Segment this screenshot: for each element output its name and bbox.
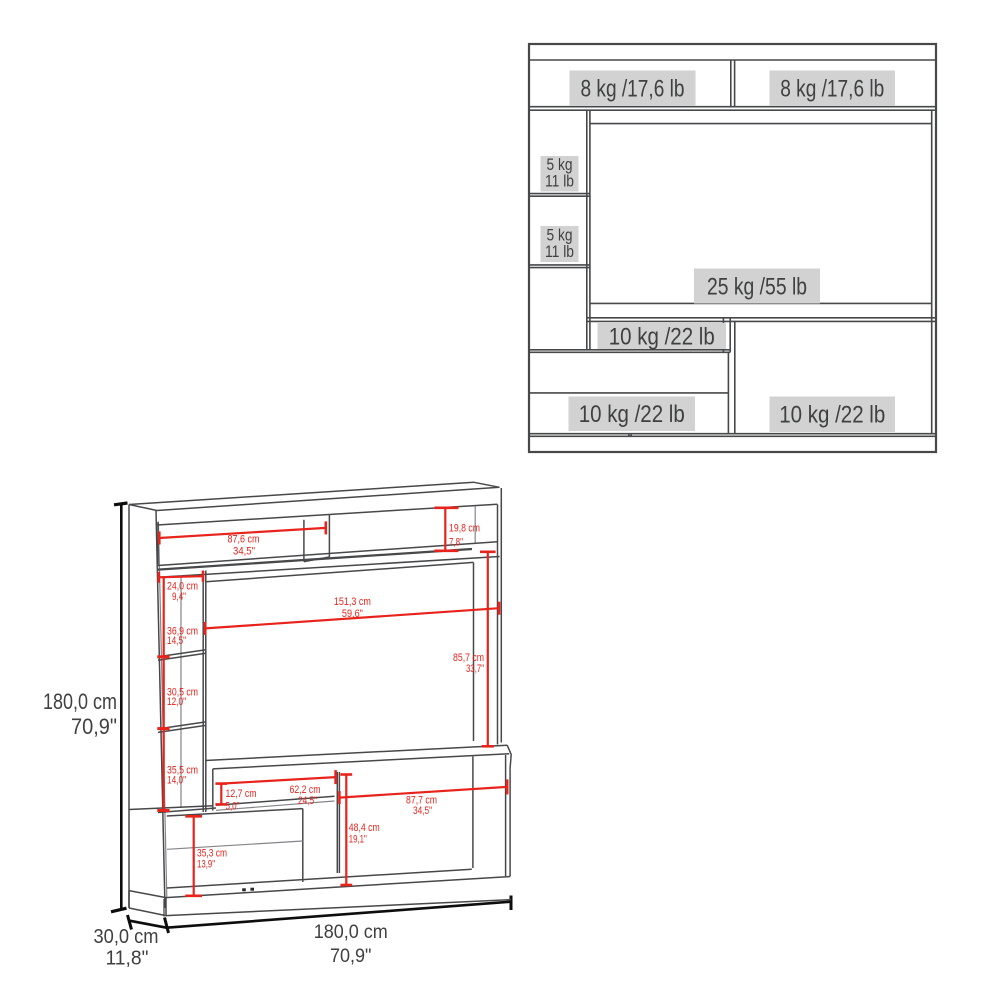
svg-text:180,0 cm: 180,0 cm: [43, 689, 117, 714]
svg-text:19,1": 19,1": [349, 834, 367, 846]
svg-text:8 kg /17,6 lb: 8 kg /17,6 lb: [780, 75, 884, 102]
svg-text:59,6": 59,6": [342, 608, 363, 620]
svg-text:12,7 cm: 12,7 cm: [226, 788, 257, 800]
svg-text:10 kg /22 lb: 10 kg /22 lb: [779, 402, 885, 429]
svg-text:24,5": 24,5": [298, 795, 317, 807]
svg-text:7,8": 7,8": [449, 537, 463, 549]
svg-text:180,0 cm: 180,0 cm: [314, 922, 388, 943]
svg-text:25 kg /55 lb: 25 kg /55 lb: [707, 273, 807, 300]
svg-text:10 kg /22 lb: 10 kg /22 lb: [609, 323, 715, 350]
svg-text:34,5": 34,5": [233, 546, 255, 558]
svg-text:34,5": 34,5": [413, 805, 432, 817]
svg-text:70,9": 70,9": [71, 714, 117, 739]
svg-text:8 kg /17,6 lb: 8 kg /17,6 lb: [581, 75, 685, 102]
svg-text:19,8 cm: 19,8 cm: [449, 523, 480, 535]
svg-text:70,9": 70,9": [330, 946, 372, 967]
svg-text:14,5": 14,5": [167, 635, 186, 647]
svg-text:30,0 cm: 30,0 cm: [94, 925, 159, 948]
svg-text:48,4 cm: 48,4 cm: [349, 822, 380, 834]
svg-text:11 lb: 11 lb: [545, 173, 574, 191]
svg-text:5,0": 5,0": [226, 801, 240, 813]
svg-text:87,6 cm: 87,6 cm: [228, 534, 260, 546]
svg-text:11 lb: 11 lb: [545, 243, 574, 261]
svg-text:▪▪: ▪▪: [628, 433, 633, 440]
svg-text:14,0": 14,0": [167, 775, 186, 787]
svg-text:33,7": 33,7": [466, 663, 484, 675]
svg-text:10 kg /22 lb: 10 kg /22 lb: [579, 401, 685, 428]
svg-text:13,9": 13,9": [197, 859, 215, 871]
svg-text:5 kg: 5 kg: [547, 156, 573, 174]
svg-text:11,8": 11,8": [106, 947, 149, 970]
svg-text:5 kg: 5 kg: [547, 226, 573, 244]
svg-text:9,4": 9,4": [172, 591, 186, 603]
svg-text:12,0": 12,0": [167, 696, 186, 708]
svg-text:151,3 cm: 151,3 cm: [334, 596, 371, 608]
svg-text:85,7 cm: 85,7 cm: [453, 652, 484, 664]
